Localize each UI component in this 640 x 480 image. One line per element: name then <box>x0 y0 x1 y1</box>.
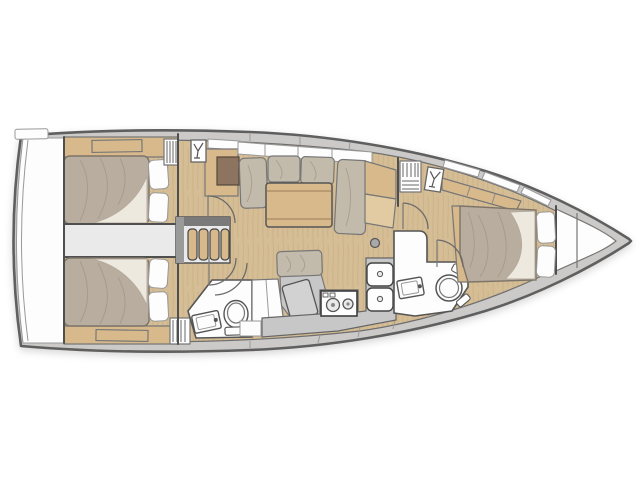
deck-hatch-forward <box>424 167 443 192</box>
aft-corridor <box>64 224 178 257</box>
pillow <box>148 193 168 223</box>
stern-boarding-step <box>15 129 48 140</box>
pillow <box>536 212 556 244</box>
cabinet-recess <box>217 157 239 185</box>
settee-cushion-right <box>334 159 369 235</box>
salon-table <box>266 183 332 227</box>
pillow <box>536 246 556 278</box>
corridor-floor <box>64 224 178 257</box>
pillow <box>148 258 169 288</box>
aft-cabin-port <box>64 137 178 224</box>
steps-side-rail <box>176 217 184 263</box>
nav-seat-cushion <box>277 250 323 277</box>
shelf-box <box>96 330 148 342</box>
floor-plan-canvas <box>0 0 640 480</box>
ladder-steps <box>188 229 229 260</box>
washbasin <box>397 277 425 299</box>
settee-cushion-back-1 <box>268 156 300 182</box>
transom-platform <box>17 138 65 343</box>
settee-cushion-left <box>239 158 268 209</box>
shelf-box <box>92 140 142 153</box>
stove <box>321 291 357 316</box>
settee-cushion-back-2 <box>301 156 335 184</box>
counter-locker <box>240 321 261 336</box>
sideboard <box>365 161 396 228</box>
mast-post <box>371 239 380 248</box>
pillow <box>148 291 168 321</box>
deck-hatch-aft <box>191 140 206 162</box>
steps-top-rail <box>176 217 230 226</box>
